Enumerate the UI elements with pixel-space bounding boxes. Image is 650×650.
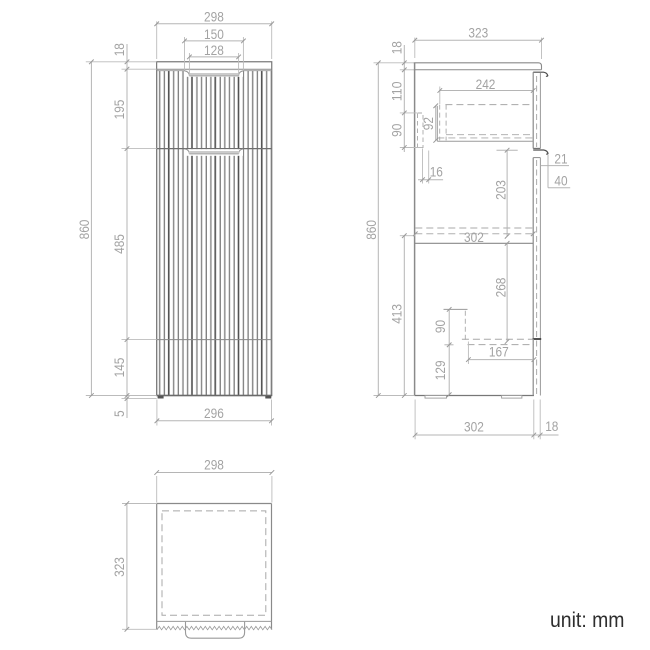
svg-text:485: 485: [111, 234, 127, 254]
svg-text:298: 298: [204, 457, 224, 473]
svg-text:302: 302: [464, 419, 484, 435]
svg-text:40: 40: [554, 173, 567, 189]
svg-text:203: 203: [492, 180, 508, 200]
svg-text:5: 5: [111, 410, 127, 417]
svg-text:90: 90: [432, 320, 448, 333]
svg-text:145: 145: [111, 357, 127, 377]
svg-text:860: 860: [363, 220, 379, 240]
svg-text:150: 150: [204, 26, 224, 42]
svg-text:302: 302: [464, 229, 484, 245]
svg-text:323: 323: [111, 557, 127, 577]
svg-text:167: 167: [489, 343, 509, 359]
svg-text:16: 16: [430, 163, 443, 179]
svg-text:195: 195: [111, 99, 127, 119]
svg-text:18: 18: [389, 41, 405, 54]
svg-text:323: 323: [468, 25, 488, 41]
svg-text:298: 298: [204, 8, 224, 24]
svg-text:110: 110: [389, 81, 405, 101]
svg-text:92: 92: [420, 117, 436, 130]
svg-text:296: 296: [204, 405, 224, 421]
svg-text:21: 21: [554, 151, 567, 167]
svg-text:18: 18: [545, 418, 558, 434]
svg-text:860: 860: [76, 219, 92, 239]
svg-text:18: 18: [111, 43, 127, 56]
svg-text:unit: mm: unit: mm: [550, 608, 625, 632]
svg-text:129: 129: [432, 360, 448, 380]
svg-text:413: 413: [389, 304, 405, 324]
svg-text:90: 90: [389, 124, 405, 137]
svg-text:128: 128: [204, 42, 224, 58]
svg-text:268: 268: [492, 277, 508, 297]
svg-text:242: 242: [476, 76, 496, 92]
